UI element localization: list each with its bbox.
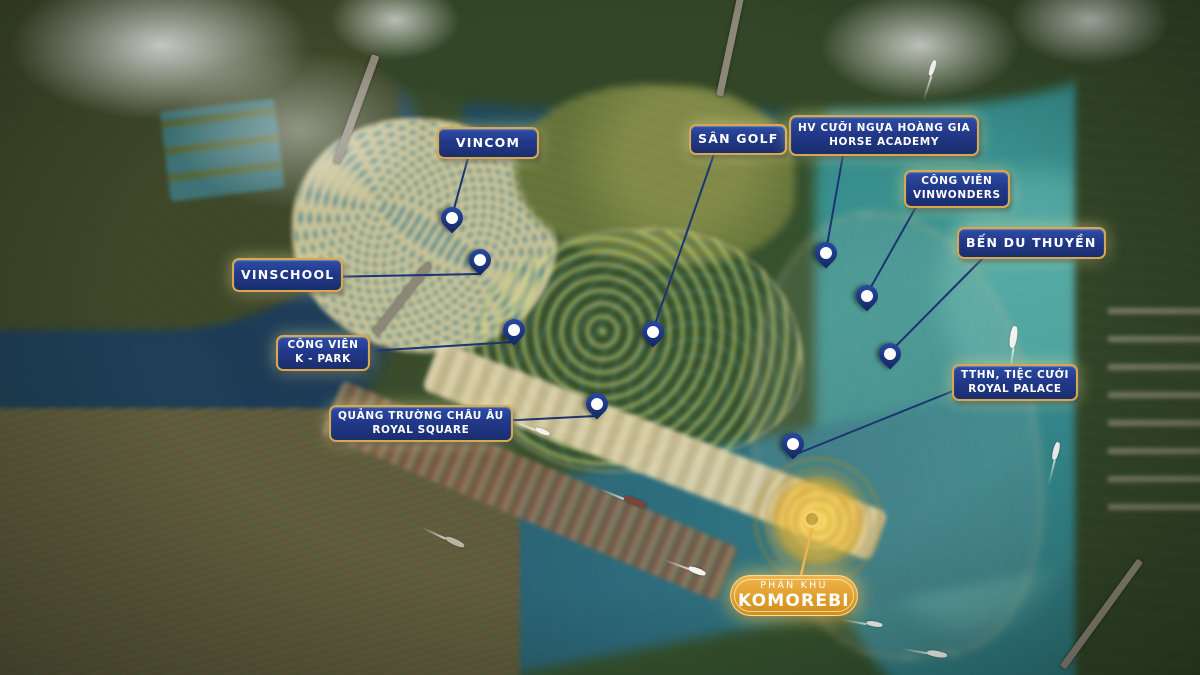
- label-text: CÔNG VIÊN: [287, 339, 358, 353]
- callout-line-ben-du-thuyen: [890, 258, 983, 352]
- label-cong-vien-vinwonders[interactable]: CÔNG VIÊNVINWONDERS: [904, 170, 1010, 208]
- label-text: QUẢNG TRƯỜNG CHÂU ÂU: [338, 410, 504, 424]
- label-horse-academy[interactable]: HV CƯỠI NGỰA HOÀNG GIAHORSE ACADEMY: [789, 115, 979, 156]
- label-text: ROYAL PALACE: [968, 383, 1061, 397]
- label-royal-palace[interactable]: TTHN, TIỆC CƯỚIROYAL PALACE: [952, 364, 1078, 401]
- callout-line-royal-palace: [794, 391, 953, 455]
- label-text: CÔNG VIÊN: [921, 175, 992, 189]
- callout-lines: [0, 0, 1200, 675]
- label-text: SÂN GOLF: [698, 131, 778, 147]
- label-text: HV CƯỠI NGỰA HOÀNG GIA: [798, 122, 970, 136]
- callout-line-komorebi: [801, 528, 812, 575]
- label-ben-du-thuyen[interactable]: BẾN DU THUYỀN: [957, 227, 1106, 259]
- label-text: VINSCHOOL: [241, 267, 334, 283]
- label-text: BẾN DU THUYỀN: [966, 235, 1097, 251]
- label-text: K - PARK: [295, 353, 351, 367]
- callout-line-vinschool: [323, 274, 479, 277]
- masterplan-map: VINCOMSÂN GOLFHV CƯỠI NGỰA HOÀNG GIAHORS…: [0, 0, 1200, 675]
- label-cong-vien-k-park[interactable]: CÔNG VIÊNK - PARK: [276, 335, 370, 371]
- komorebi-zone-ring: [803, 510, 821, 528]
- label-text: HORSE ACADEMY: [829, 136, 939, 150]
- callout-line-horse-academy: [826, 155, 843, 251]
- callout-line-cong-vien-vinwonders: [867, 207, 916, 294]
- label-text: VINCOM: [456, 135, 520, 151]
- callout-line-cong-vien-k-park: [369, 342, 513, 351]
- badge-komorebi[interactable]: PHÂN KHUKOMOREBI: [730, 575, 858, 616]
- label-text: VINWONDERS: [913, 189, 1001, 203]
- label-royal-square[interactable]: QUẢNG TRƯỜNG CHÂU ÂUROYAL SQUARE: [329, 405, 513, 442]
- label-san-golf[interactable]: SÂN GOLF: [689, 124, 787, 155]
- callout-line-san-golf: [653, 154, 714, 330]
- label-text: ROYAL SQUARE: [372, 424, 469, 438]
- label-text: TTHN, TIỆC CƯỚI: [961, 369, 1069, 383]
- label-vinschool[interactable]: VINSCHOOL: [232, 258, 343, 292]
- label-text: KOMOREBI: [738, 592, 850, 612]
- label-vincom[interactable]: VINCOM: [437, 127, 539, 159]
